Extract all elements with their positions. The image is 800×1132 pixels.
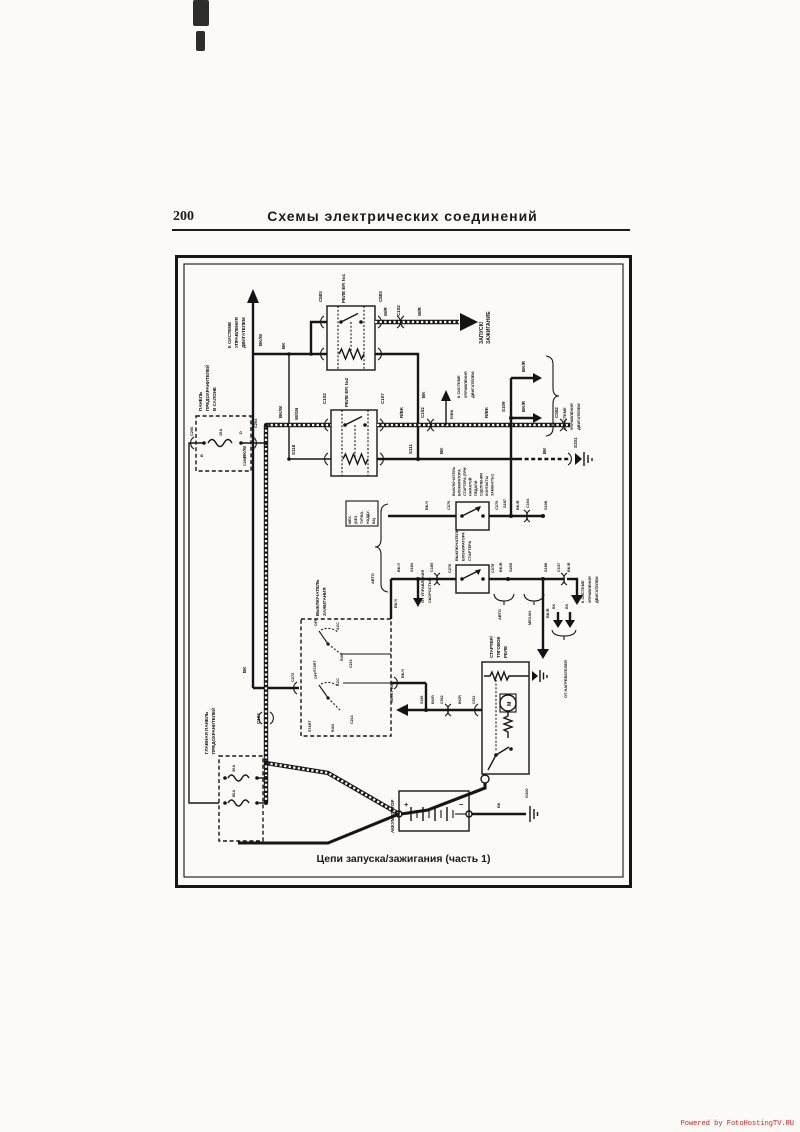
svg-text:BK/Y: BK/Y — [396, 562, 401, 572]
sys-ctrl-label-3: К СИСТЕМЕ — [562, 407, 567, 430]
svg-text:BK/W: BK/W — [242, 445, 247, 458]
svg-text:S187: S187 — [502, 499, 507, 508]
wire-label: BK/W — [258, 333, 263, 346]
svg-text:УПРАВЛЕНИЯ: УПРАВЛЕНИЯ — [587, 576, 592, 603]
svg-text:BK/R: BK/R — [515, 500, 520, 510]
auto-label-1: АВТО — [370, 573, 375, 584]
battery-label: АККУМУЛЯТОР — [390, 799, 395, 833]
svg-text:C562: C562 — [440, 695, 444, 704]
svg-text:РЕЛЕ: РЕЛЕ — [503, 646, 508, 658]
svg-text:BK/R: BK/R — [566, 562, 571, 572]
svg-text:ПЕДАЛИ: ПЕДАЛИ — [474, 480, 478, 496]
svg-text:C102: C102 — [396, 305, 401, 316]
svg-text:RUN: RUN — [340, 653, 344, 661]
svg-text:ПРЕДОХРАНИТЕЛЕЙ: ПРЕДОХРАНИТЕЛЕЙ — [203, 365, 210, 411]
svg-text:C276: C276 — [447, 563, 452, 573]
svg-text:R/BK: R/BK — [449, 409, 454, 419]
starter-relay: СТАРТЕР/ ТЯГОВОЕ РЕЛЕ M — [481, 635, 547, 783]
svg-text:W/R: W/R — [383, 307, 388, 316]
svg-text:C511: C511 — [472, 696, 476, 704]
interlock2-label: ВЫКЛЮЧАТЕЛЬ — [454, 529, 459, 561]
splice-s118: S118 — [291, 444, 296, 455]
start-ignition-feed: W/R C102 W/R ЗАПУСК/ ЗАЖИГАНИЕ — [375, 305, 492, 344]
ignition-label: ВЫКЛЮЧАТЕЛЬ — [315, 579, 320, 616]
fuse-15a: 15A — [218, 429, 223, 436]
mech-box-label: МЕХ. — [348, 515, 352, 524]
svg-text:C883: C883 — [378, 291, 383, 302]
svg-text:S188: S188 — [543, 562, 548, 572]
svg-text:ACC: ACC — [336, 622, 340, 630]
svg-text:ACC: ACC — [336, 678, 340, 686]
mechan-label: МЕХАН. — [527, 610, 532, 625]
start-ignition-arrow — [460, 313, 478, 331]
svg-text:S111: S111 — [408, 443, 413, 454]
scan-smudge — [196, 31, 205, 51]
cabin-fuse-panel: ПАНЕЛЬ ПРЕДОХРАНИТЕЛЕЙ В САЛОНЕ C206 C20… — [189, 365, 268, 803]
svg-text:ДВИГАТЕЛЕМ: ДВИГАТЕЛЕМ — [470, 372, 475, 399]
svg-text:НАЖАТОЙ: НАЖАТОЙ — [469, 477, 473, 496]
svg-text:ЗАМКНУТЫ): ЗАМКНУТЫ) — [491, 473, 495, 496]
svg-text:C214: C214 — [350, 715, 354, 724]
svg-text:BK/Y: BK/Y — [424, 500, 429, 510]
ground-s101: S101 — [573, 437, 578, 448]
svg-text:B: B — [199, 454, 204, 457]
svg-text:BK: BK — [565, 603, 569, 609]
svg-text:BK: BK — [542, 447, 547, 454]
svg-text:C102: C102 — [420, 407, 425, 418]
svg-text:УПРАВЛЕНИЯ: УПРАВЛЕНИЯ — [234, 317, 239, 348]
battery-minus: − — [459, 800, 464, 809]
svg-text:BK: BK — [552, 603, 556, 609]
svg-text:СТАРТЕРА: СТАРТЕРА — [467, 541, 472, 561]
svg-text:ПРЕДОХРАНИТЕЛЕЙ: ПРЕДОХРАНИТЕЛЕЙ — [209, 708, 216, 754]
motor-m: M — [507, 702, 513, 706]
ground-g100: G100 — [524, 788, 529, 798]
svg-text:RUN: RUN — [331, 724, 335, 732]
svg-text:BK/R: BK/R — [498, 562, 503, 572]
svg-text:ТУРБО-: ТУРБО- — [360, 510, 364, 524]
svg-text:(БЕЗ: (БЕЗ — [354, 515, 358, 524]
svg-text:S189: S189 — [420, 696, 424, 704]
svg-text:BK/R: BK/R — [458, 695, 462, 704]
svg-text:C102: C102 — [322, 393, 327, 404]
svg-text:C185: C185 — [429, 562, 434, 572]
svg-text:ДВИГАТЕЛЕМ: ДВИГАТЕЛЕМ — [241, 317, 246, 348]
svg-text:R/BK: R/BK — [484, 406, 489, 418]
svg-text:BK: BK — [281, 342, 286, 349]
svg-text:BK/R: BK/R — [545, 608, 550, 618]
diagram-frame: К СИСТЕМЕ УПРАВЛЕНИЯ ДВИГАТЕЛЕМ BK/W BK … — [175, 255, 632, 888]
svg-text:R/BK: R/BK — [399, 406, 404, 418]
svg-text:ВА): ВА) — [372, 517, 376, 524]
fuse-30a: 30A — [231, 765, 236, 772]
svg-text:BK: BK — [421, 391, 426, 398]
svg-text:S108: S108 — [543, 500, 548, 510]
svg-text:ЗАПУСК/: ЗАПУСК/ — [479, 321, 485, 344]
svg-text:ДВИГАТЕЛЕМ: ДВИГАТЕЛЕМ — [576, 404, 581, 431]
svg-text:OFF: OFF — [314, 671, 318, 679]
left-buses: BK BK/W BK BK/W S118 C103 — [242, 322, 331, 803]
svg-text:C107: C107 — [380, 393, 385, 404]
svg-text:ЗАЖИГАНИЯ: ЗАЖИГАНИЯ — [322, 587, 327, 616]
ignition-switch: BK/Y ВЫКЛЮЧАТЕЛЬ ЗАЖИГАНИЯ OFF ACC RUN S… — [290, 579, 398, 736]
svg-text:W/GN: W/GN — [294, 408, 299, 420]
svg-text:C279: C279 — [446, 500, 451, 510]
svg-text:C279: C279 — [494, 500, 499, 510]
svg-text:S184: S184 — [409, 562, 414, 572]
svg-text:S109: S109 — [501, 401, 506, 412]
svg-text:BK: BK — [496, 802, 501, 808]
relay1-efi: РЕЛЕ EFI №1 C883 C883 — [318, 273, 383, 370]
svg-text:СЦЕПЛЕНИЯ: СЦЕПЛЕНИЯ — [480, 473, 484, 496]
svg-text:C104: C104 — [525, 498, 530, 508]
svg-text:OFF: OFF — [314, 618, 318, 626]
svg-text:BK/R: BK/R — [521, 360, 526, 372]
svg-text:СТАРТЕРА (ПРИ: СТАРТЕРА (ПРИ — [463, 467, 467, 496]
svg-text:БЛОКИРАТОРА: БЛОКИРАТОРА — [461, 532, 466, 561]
svg-text:D: D — [238, 431, 243, 434]
svg-text:BK/Y: BK/Y — [400, 668, 405, 678]
battery: + − АККУМУЛЯТОР BK G100 — [238, 761, 538, 843]
heaters-input: BK BK ОТ НАГРЕВАТЕЛЕЙ — [552, 603, 576, 698]
svg-text:C552: C552 — [554, 407, 559, 418]
svg-text:C206: C206 — [189, 426, 194, 436]
svg-text:BK/Y: BK/Y — [393, 598, 398, 608]
svg-text:C206: C206 — [242, 456, 247, 466]
svg-text:C204: C204 — [253, 418, 258, 428]
header-rule — [172, 229, 630, 231]
auto-label-2: АВТО — [497, 609, 502, 620]
watermark: Powered by FotoHostingTV.RU — [681, 1120, 794, 1128]
svg-text:S205: S205 — [508, 562, 513, 572]
svg-text:ЗАЖИГАНИЕ: ЗАЖИГАНИЕ — [486, 311, 492, 344]
svg-text:BK: BK — [439, 447, 444, 454]
svg-text:BK/R: BK/R — [431, 695, 435, 704]
svg-text:СКОРОСТЬЮ: СКОРОСТЬЮ — [427, 577, 432, 603]
main-panel-label: ГЛАВНАЯ ПАНЕЛЬ — [204, 711, 209, 754]
svg-text:BK/W: BK/W — [278, 405, 283, 418]
battery-plus: + — [404, 800, 409, 809]
svg-text:БЛОКИРАТОРА: БЛОКИРАТОРА — [458, 469, 462, 496]
svg-text:В САЛОНЕ: В САЛОНЕ — [212, 387, 217, 411]
wiring-diagram-svg: К СИСТЕМЕ УПРАВЛЕНИЯ ДВИГАТЕЛЕМ BK/W BK … — [178, 258, 629, 885]
sys-ctrl-label-4: К СИСТЕМЕ — [580, 580, 585, 603]
svg-text:НАДДУ-: НАДДУ- — [366, 509, 370, 524]
sys-ctrl-label-2: К СИСТЕМЕ — [456, 375, 461, 398]
main-fuse-panel: 30A 80A ГЛАВНАЯ ПАНЕЛЬ ПРЕДОХРАНИТЕЛЕЙ — [204, 708, 268, 841]
svg-text:C216: C216 — [349, 659, 353, 668]
speed-ctrl-label: ОТ УПРАВЛЕНИЯ — [420, 570, 425, 603]
svg-text:C883: C883 — [318, 291, 323, 302]
diagram-caption: Цепи запуска/зажигания (часть 1) — [178, 853, 629, 865]
heaters-label: ОТ НАГРЕВАТЕЛЕЙ — [563, 660, 568, 698]
svg-text:C137: C137 — [556, 563, 561, 572]
svg-text:УПРАВЛЕНИЯ: УПРАВЛЕНИЯ — [569, 403, 574, 430]
svg-text:ДВИГАТЕЛЕМ: ДВИГАТЕЛЕМ — [594, 577, 599, 604]
starter-relay-label: СТАРТЕР/ — [489, 635, 494, 658]
heating-label: ОБОГРЕВ — [389, 684, 394, 703]
engine-control-branch-right: BK/R BK/R S109 К СИСТЕМЕ УПРАВЛЕНИЯ ДВИГ… — [501, 356, 581, 516]
sys-ctrl-label-1: К СИСТЕМЕ — [227, 322, 232, 348]
engine-control-arrow-topleft: К СИСТЕМЕ УПРАВЛЕНИЯ ДВИГАТЕЛЕМ BK/W — [227, 289, 263, 354]
svg-text:КОНТАКТЫ: КОНТАКТЫ — [485, 475, 489, 496]
starter-interlock-1: ВЫКЛЮЧАТЕЛЬ БЛОКИРАТОРА СТАРТЕРА (ПРИ НА… — [388, 466, 548, 530]
relay1-label: РЕЛЕ EFI №1 — [341, 273, 346, 303]
start-wire-row: BK/Y ОБОГРЕВ S189 BK/R C562 BK/R C511 — [389, 668, 482, 716]
svg-text:ТЯГОВОЕ: ТЯГОВОЕ — [496, 636, 501, 658]
fuse-80a: 80A — [231, 790, 236, 797]
svg-text:УПРАВЛЕНИЯ: УПРАВЛЕНИЯ — [463, 371, 468, 398]
svg-text:BK: BK — [242, 666, 247, 673]
svg-text:C278: C278 — [490, 563, 495, 573]
page-title: Схемы электрических соединений — [175, 208, 630, 224]
svg-text:C272: C272 — [290, 672, 295, 682]
interlock1-label: ВЫКЛЮЧАТЕЛЬ — [452, 466, 456, 496]
cabin-panel-label: ПАНЕЛЬ — [198, 391, 203, 411]
svg-text:START: START — [313, 659, 317, 672]
svg-text:W/R: W/R — [417, 307, 422, 316]
svg-text:START: START — [308, 719, 312, 732]
relay2-label: РЕЛЕ EFI №2 — [344, 377, 349, 407]
scan-smudge — [193, 0, 209, 26]
svg-text:BK/R: BK/R — [521, 400, 526, 412]
